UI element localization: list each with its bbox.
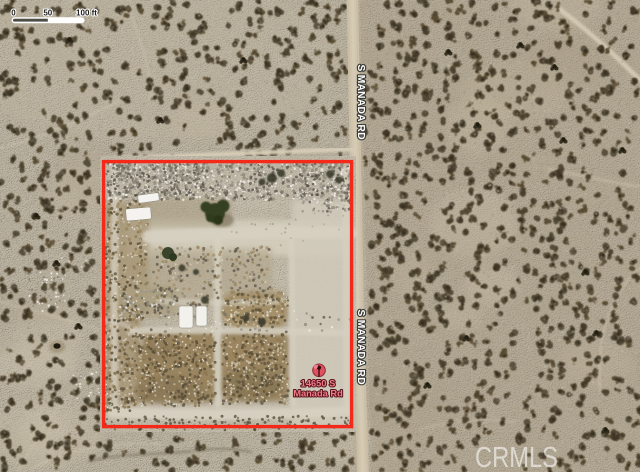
svg-text:S MANADA RD: S MANADA RD [355, 65, 366, 140]
svg-text:100 ft: 100 ft [76, 9, 97, 18]
svg-text:50: 50 [43, 9, 52, 18]
svg-text:S MANADA RD: S MANADA RD [355, 310, 366, 385]
svg-text:0: 0 [11, 9, 16, 18]
svg-text:CRMLS: CRMLS [475, 442, 558, 472]
svg-text:Manada Rd: Manada Rd [293, 389, 343, 399]
svg-text:14650 S: 14650 S [301, 379, 336, 389]
